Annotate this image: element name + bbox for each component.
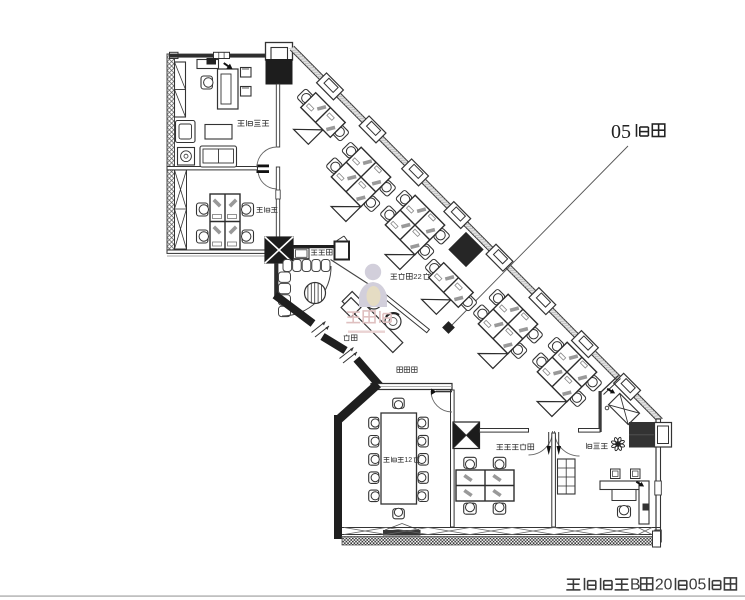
svg-text:12: 12: [404, 457, 412, 464]
svg-text:22: 22: [413, 272, 421, 281]
svg-text:20: 20: [655, 577, 673, 594]
svg-text:B: B: [630, 577, 641, 594]
svg-text:05: 05: [611, 121, 631, 143]
svg-text:05: 05: [689, 577, 707, 594]
